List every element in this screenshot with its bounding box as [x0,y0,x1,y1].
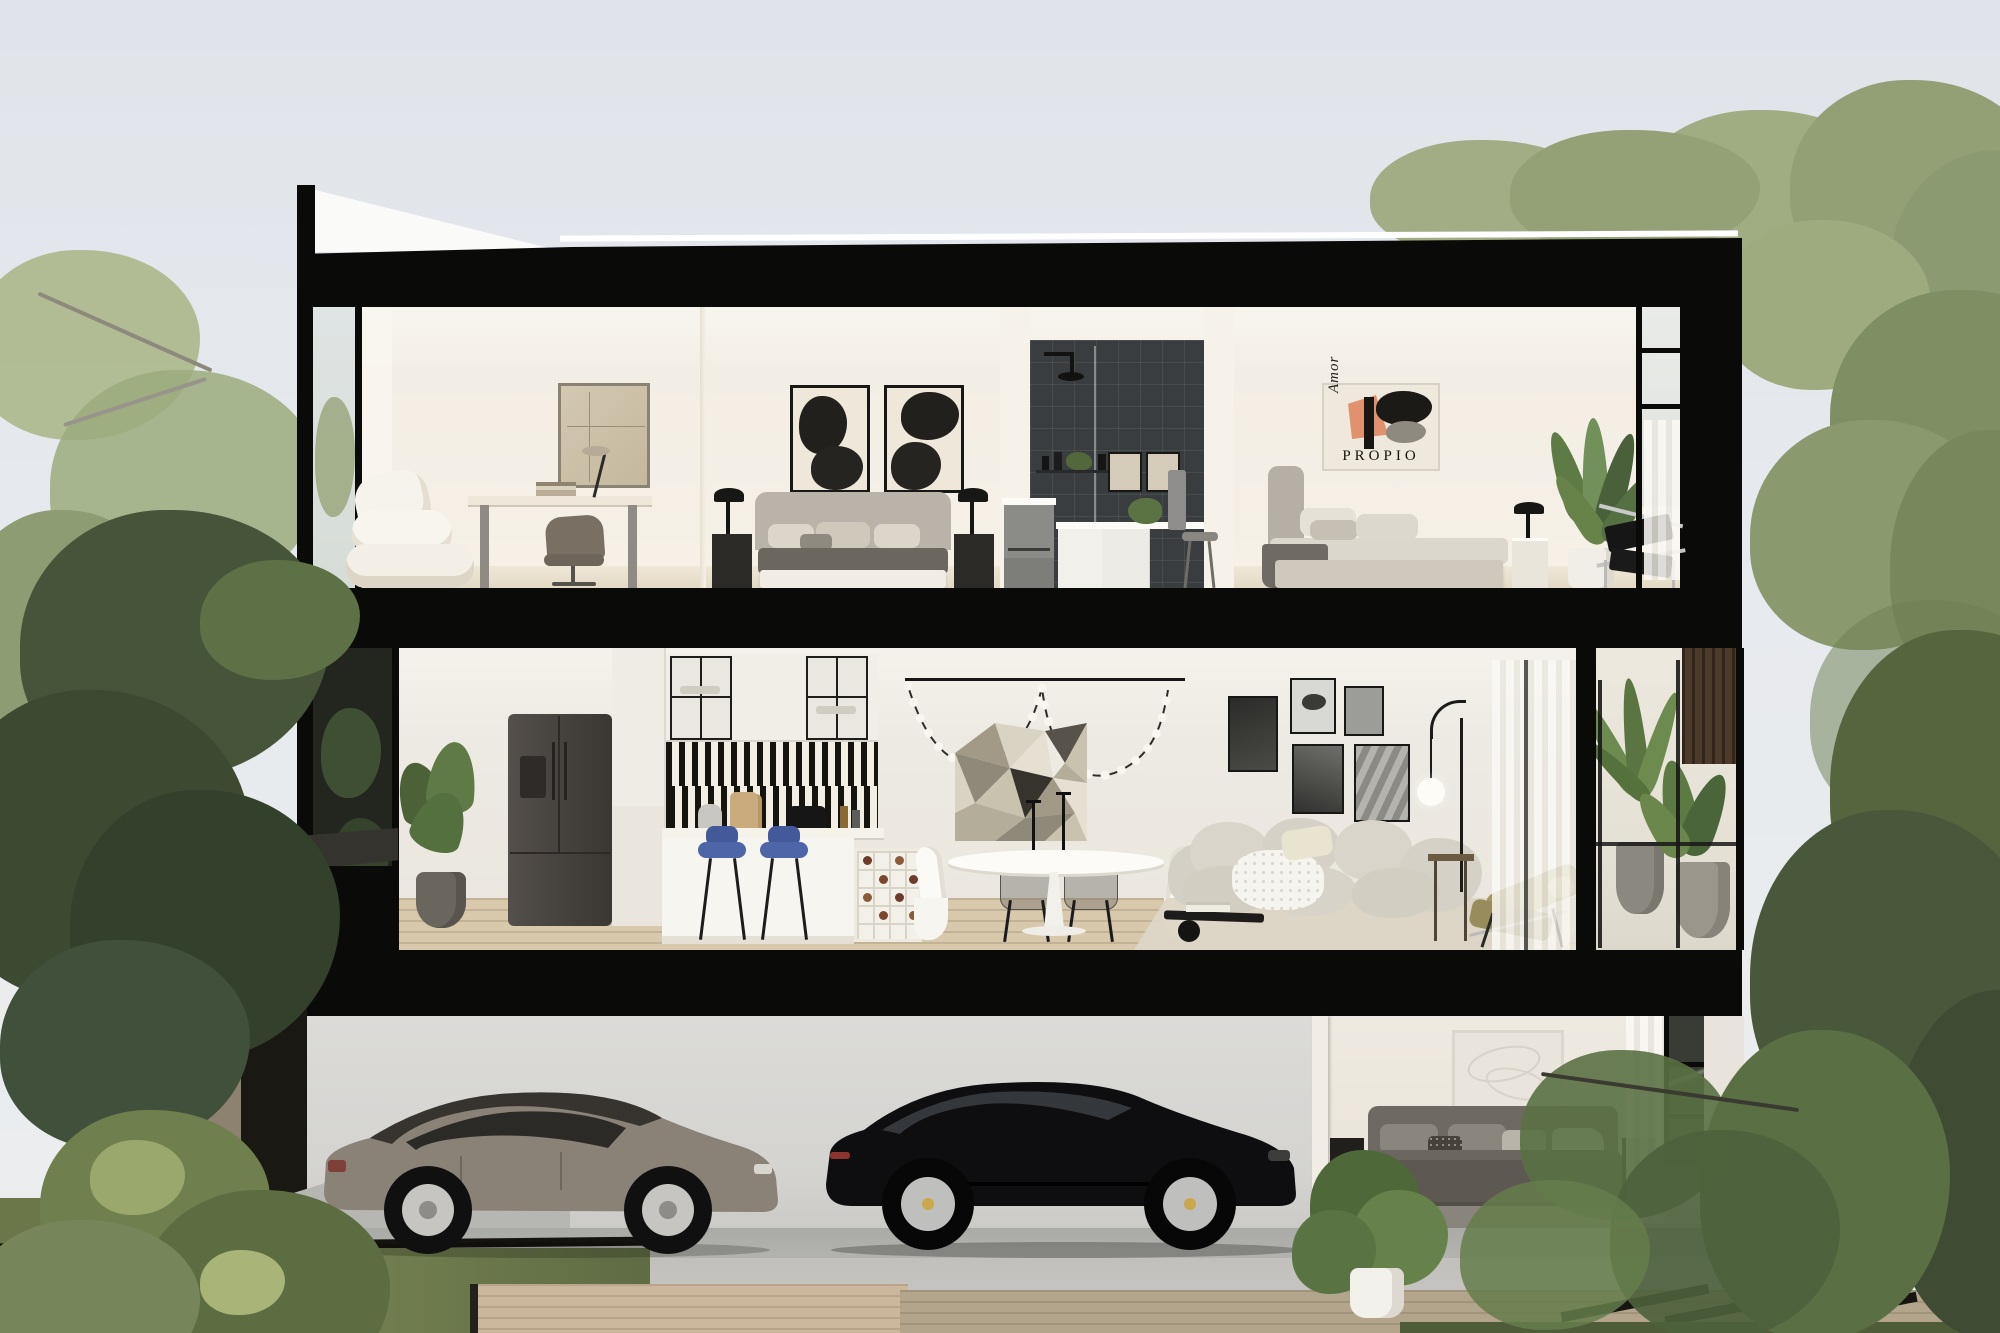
gallery-frame [1228,696,1278,772]
master-curtain [1644,420,1680,580]
kitchen-island [662,838,854,944]
glass-door-frame [1524,660,1528,950]
bathroom-shelf [1036,470,1118,473]
candlestick [1062,794,1065,850]
shelf-bottle [1042,456,1049,470]
counter-bottles [840,806,848,828]
cutaway-house-scene: Amor PROPIO [0,0,2000,1333]
dining-table-foot [1022,926,1086,936]
bedside-lamp [1526,510,1530,538]
coffee-table-books [1186,902,1230,912]
vanity-top [1002,498,1056,505]
art-detail-line [589,392,590,482]
mushroom-lamp [726,498,730,534]
black-sports-suv [816,1056,1316,1260]
shelf-bottle [1054,452,1062,470]
glass-display-cabinet [806,656,868,740]
middle-floor-divider-column [1576,648,1596,950]
faceted-wall-art [955,723,1087,841]
wine-bottle [879,875,888,884]
top-floor-left-trim [297,307,313,588]
photo-detail [1302,694,1326,710]
poster-black-bar [1364,397,1374,449]
candlestick [1032,802,1035,850]
side-table-leg [1434,861,1437,941]
balcony-railing-rail [1596,842,1742,846]
art-black-shape [901,392,959,440]
bathroom-print [1108,452,1142,492]
master-window-bar [1636,404,1680,409]
wine-bottle [879,911,888,920]
arc-lamp-globe [1417,778,1445,806]
stove-pot [788,806,826,828]
study-artwork [558,383,650,488]
vanity-body [1004,505,1054,588]
arc-lamp-pole [1460,718,1463,892]
gallery-frame [1344,686,1384,736]
dining-table-top [948,850,1164,874]
togo-chair-base [346,544,474,588]
desk-leg [628,505,637,588]
cabinet-dishes [816,706,856,714]
wine-bottle [863,856,872,865]
wine-bottle [863,893,872,902]
bed1-pillow [874,524,920,548]
bath-stool [1182,532,1218,541]
balcony-timber-slats [1682,648,1742,764]
living-sheer-curtain [1492,660,1576,950]
wine-bottle [895,856,904,865]
window-tree-reflection [315,397,355,517]
kitchen-backsplash [666,742,878,786]
sofa-crochet-throw [1232,850,1324,910]
master-poster: Amor PROPIO [1322,383,1440,471]
plant-pot-white [1568,548,1614,588]
bar-stool-seat [698,842,746,858]
side-table-leg [1464,861,1467,941]
wine-rack [854,848,922,942]
cabinet-dishes [680,686,720,694]
wine-bottle [895,893,904,902]
mushroom-lamp [970,498,974,534]
candlestick-top [1026,800,1041,803]
shower-pipe [1070,352,1074,374]
bedside-table [1512,538,1548,588]
counter-plant [1128,498,1162,524]
gallery-frame [1290,678,1336,734]
study-window [313,307,357,588]
mushroom-lamp-cap [958,488,988,502]
bathroom-cabinet [1058,529,1150,588]
roof-slab [297,238,1742,308]
tall-cabinet [612,648,666,926]
fridge-dispenser [520,756,546,798]
coffee-table-sphere-leg [1178,920,1200,942]
white-planter-pot [1350,1268,1404,1318]
balcony-corner-column [1736,648,1744,950]
cabinet-mullion [836,658,838,738]
wall-divider [700,307,706,588]
fridge-split [558,716,560,852]
floor-slab-upper [297,588,1742,648]
fridge-handle [552,742,555,800]
bar-stool-seat [760,842,808,858]
bed2-pillow [1310,520,1358,540]
desk-lamp-head [582,446,610,456]
cabinet-shelf [808,696,866,698]
bedroom1-art-left [790,385,870,493]
glass-display-cabinet [670,656,732,740]
poster-word-propio: PROPIO [1324,448,1438,465]
bronze-suv [310,1060,790,1260]
poster-grey-shape [1386,421,1426,443]
floor-slab-lower [280,950,1742,1016]
window-plant-glimpse [321,708,381,798]
gallery-frame [1354,744,1410,822]
cabinet-shelf [672,696,730,698]
shower-head [1058,372,1084,381]
cutting-boards [730,792,758,830]
fridge-handle [564,742,567,800]
side-table [1428,854,1474,861]
master-window-bar [1636,348,1680,353]
poster-black-shape [1376,391,1432,425]
desk-books [536,482,576,496]
shelf-plant [1066,452,1092,470]
art-detail-line [567,426,645,427]
bed1-base [760,570,946,588]
wine-bottle [909,875,918,884]
poster-word-amor: Amor [1326,356,1343,393]
candlestick-top [1056,792,1071,795]
mushroom-lamp-cap [714,488,744,502]
fridge-drawer-line [510,852,610,854]
vanity-towel-rail [1008,548,1050,551]
bath-towel [1168,470,1186,530]
cabinet-mullion [700,658,702,738]
balcony-pot [1616,842,1664,914]
nightstand [712,534,752,588]
balcony-railing-upright [1598,680,1602,948]
desk-chair-post [571,566,575,582]
shelf-bottle [1098,454,1106,470]
bedroom1-art-right [884,385,964,493]
bed2-pillow [1356,514,1418,540]
fiddle-leaf-pot [416,872,466,928]
art-black-shape [811,446,863,490]
bedside-lamp-cap [1514,502,1544,514]
arc-lamp-cord [1430,730,1432,780]
desk-chair-seat [544,554,604,566]
desk-top [468,496,652,505]
nightstand [954,534,994,588]
fridge [508,714,612,926]
art-black-shape [891,442,941,490]
gallery-frame [1292,744,1344,814]
desk-chair-base [552,582,596,586]
wassily-chair-leg [1604,560,1607,588]
timber-deck [470,1284,908,1333]
bed2-base [1275,560,1503,588]
roof-parapet-wedge [315,190,565,252]
balcony-railing-upright [1676,660,1680,948]
balcony-pot [1676,862,1730,938]
desk-leg [480,505,489,588]
